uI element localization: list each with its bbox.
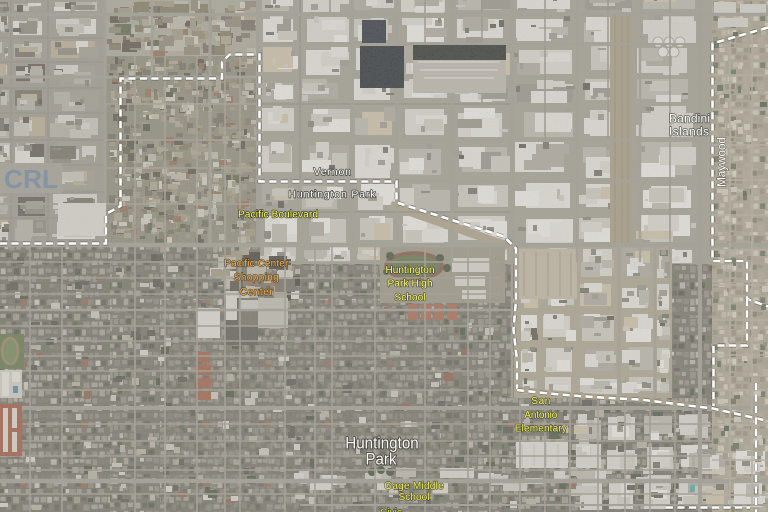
svg-text:Civic: Civic	[380, 508, 402, 512]
svg-text:Center: Center	[240, 287, 274, 298]
svg-text:Maywood: Maywood	[715, 137, 729, 187]
svg-text:Vernon: Vernon	[314, 166, 352, 178]
svg-text:Islands: Islands	[669, 125, 709, 139]
svg-text:Gage Middle: Gage Middle	[384, 481, 444, 492]
svg-text:Park: Park	[366, 451, 398, 469]
svg-text:Elementary: Elementary	[515, 424, 567, 435]
svg-text:Shopping: Shopping	[234, 273, 279, 284]
svg-text:School: School	[395, 292, 426, 303]
svg-text:Pacific Boulevard: Pacific Boulevard	[238, 210, 318, 221]
svg-text:Huntington Park: Huntington Park	[289, 189, 377, 201]
svg-text:Antonio: Antonio	[524, 410, 557, 421]
svg-text:School: School	[399, 492, 430, 503]
svg-text:Park High: Park High	[388, 279, 433, 290]
svg-text:Pacific Center: Pacific Center	[224, 259, 289, 270]
svg-text:Huntington: Huntington	[386, 265, 435, 276]
svg-text:Bandini: Bandini	[669, 112, 710, 126]
svg-text:San: San	[531, 396, 550, 407]
